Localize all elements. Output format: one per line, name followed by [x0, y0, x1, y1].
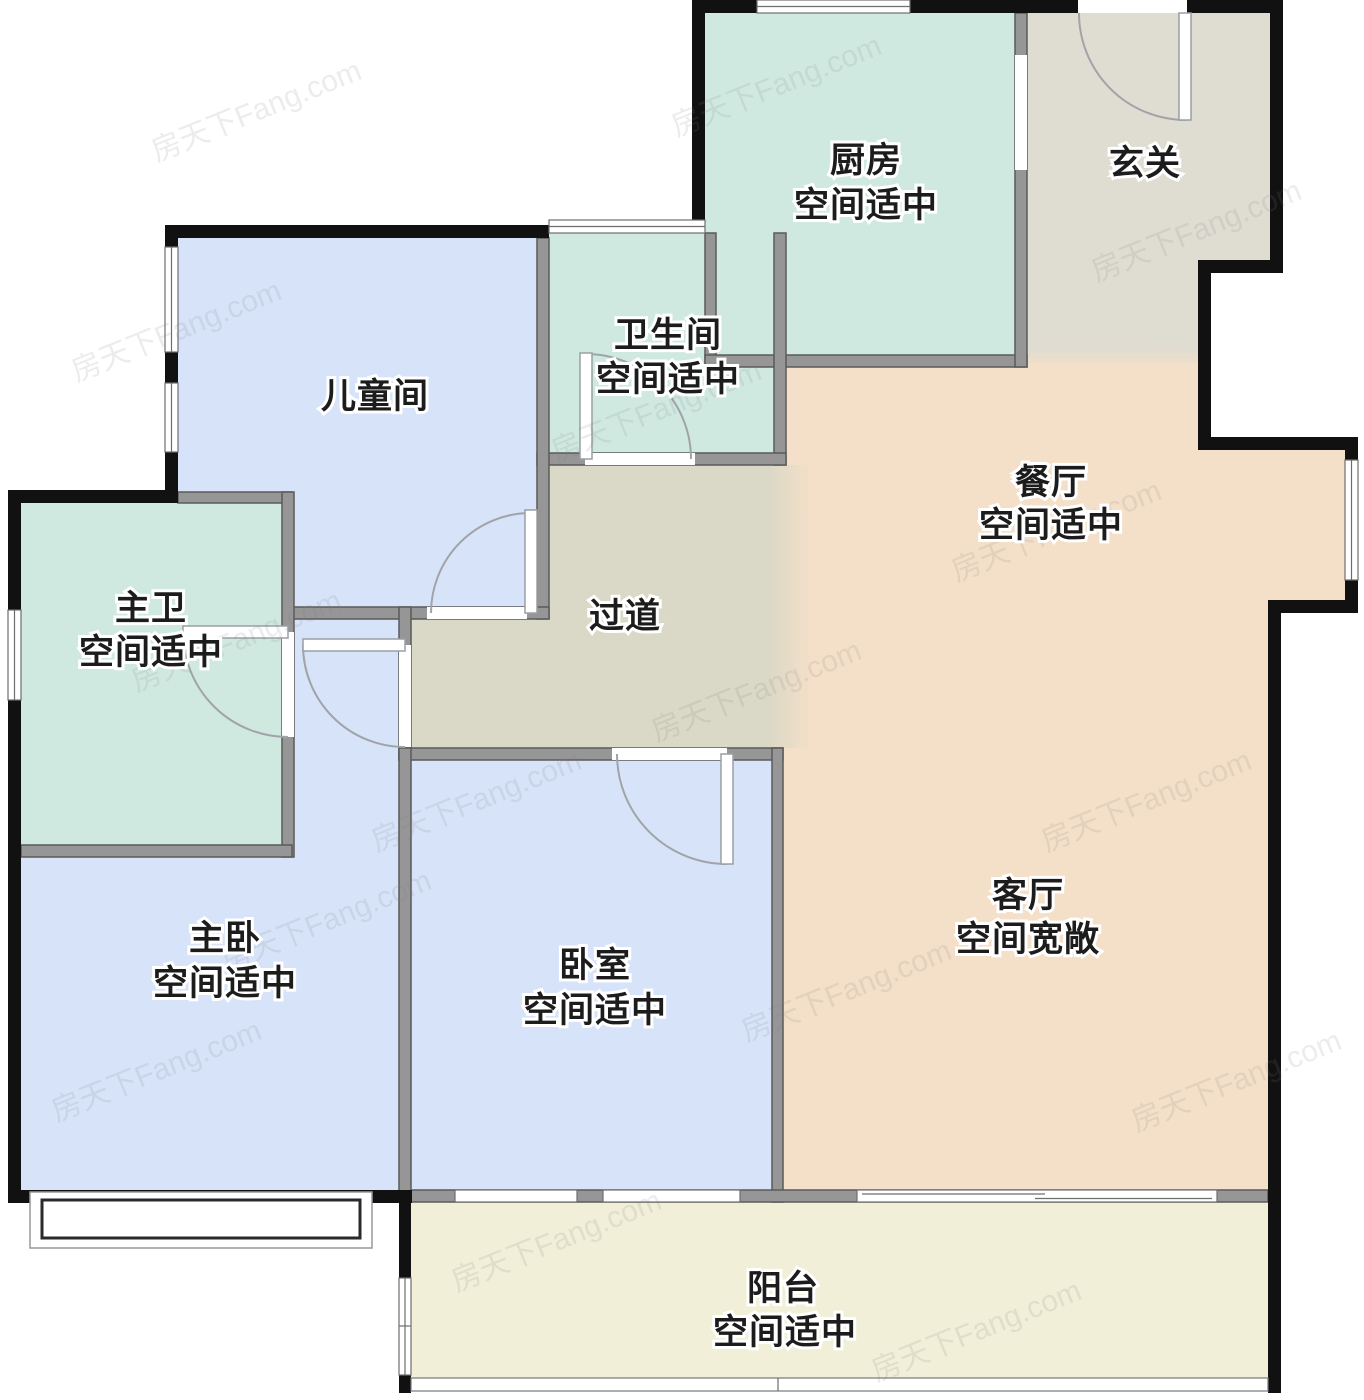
balcony-railing [411, 1378, 1268, 1391]
balcony-left-wall-upper [399, 1202, 411, 1278]
bathroom-label: 卫生间 [614, 316, 722, 355]
east-wall-lower [1268, 600, 1281, 1393]
bedroom-door-opening [612, 748, 727, 760]
master-bath-bottom-wall [21, 845, 292, 857]
master-bedroom-door-leaf [303, 639, 405, 651]
bay-window-inner [42, 1200, 360, 1238]
corridor-dining-transition [768, 465, 810, 748]
living-balcony-slider [857, 1190, 1217, 1202]
bedroom-note: 空间适中 [523, 991, 667, 1030]
east-step-3 [1268, 600, 1358, 613]
entrance-opening [1078, 0, 1187, 13]
floorplan: 房天下Fang.com 房天下Fang.com 房天下Fang.com 房天下F… [0, 0, 1364, 1400]
east-step-2 [1198, 437, 1358, 450]
bathroom-door-opening [585, 453, 695, 465]
master-bath-top-wall [178, 492, 292, 503]
entry-label: 玄关 [1109, 144, 1181, 183]
bathroom-note: 空间适中 [596, 360, 740, 399]
children-right-wall [537, 238, 549, 619]
master-bath-note: 空间适中 [79, 633, 223, 672]
master-bedroom-door-opening [399, 645, 411, 747]
living-label: 客厅 [992, 875, 1064, 915]
east-wall-upper [1270, 0, 1283, 273]
master-bedroom-label: 主卧 [189, 919, 261, 958]
master-bath-door-opening [282, 632, 294, 737]
master-bedroom-note: 空间适中 [153, 964, 297, 1003]
children-label: 儿童间 [321, 377, 429, 416]
bedroom-window-1 [455, 1190, 577, 1202]
balcony-left-corner [399, 1375, 411, 1393]
children-door-opening [427, 607, 527, 619]
children-top-wall [165, 225, 549, 238]
dining-note: 空间适中 [979, 506, 1123, 545]
kitchen-note: 空间适中 [794, 186, 938, 225]
balcony-note: 空间适中 [713, 1313, 857, 1352]
balcony-label: 阳台 [747, 1269, 819, 1308]
kitchen-entry-opening [1015, 55, 1027, 170]
west-step [8, 490, 178, 503]
living-note: 空间宽敞 [956, 919, 1100, 959]
west-wall [8, 490, 21, 1202]
floorplan-svg: 房天下Fang.com 房天下Fang.com 房天下Fang.com 房天下F… [0, 0, 1364, 1400]
bathroom-right-wall [774, 233, 786, 465]
corridor-label: 过道 [589, 597, 661, 636]
children-door-leaf [525, 510, 537, 613]
bedroom-label: 卧室 [559, 945, 631, 985]
bedroom-living-wall [772, 748, 783, 1202]
dining-label: 餐厅 [1015, 463, 1087, 502]
kitchen-label: 厨房 [830, 141, 902, 180]
master-bath-label: 主卫 [115, 589, 187, 628]
bedroom-door-leaf [721, 754, 733, 864]
watermark: 房天下Fang.com [147, 54, 366, 168]
east-wall-mid [1198, 260, 1211, 450]
entrance-door-leaf [1179, 13, 1191, 120]
